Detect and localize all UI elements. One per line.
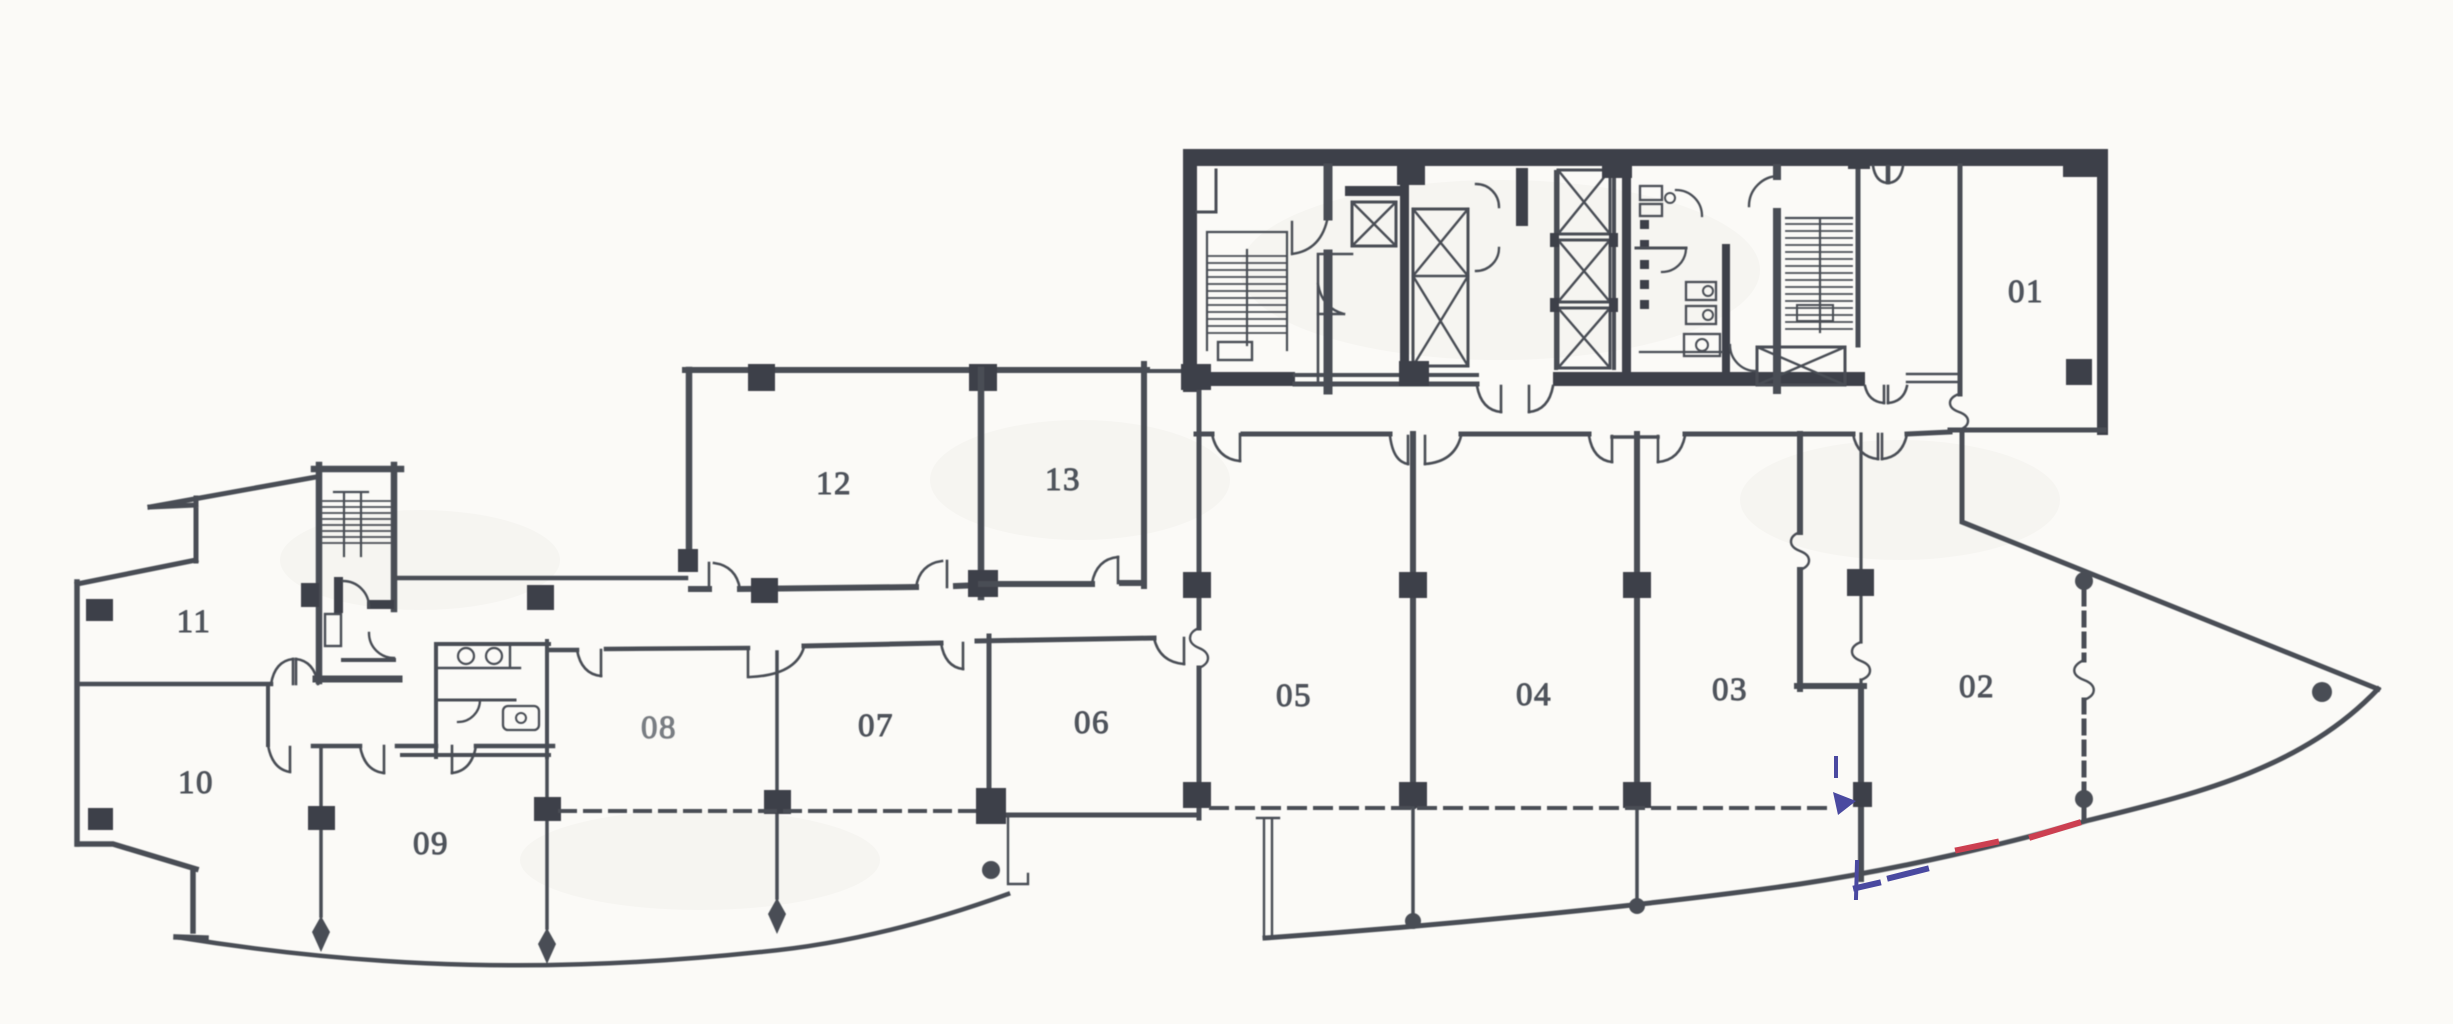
svg-text:10: 10 bbox=[178, 765, 214, 801]
svg-text:05: 05 bbox=[1276, 678, 1312, 714]
svg-text:03: 03 bbox=[1712, 672, 1748, 708]
svg-text:06: 06 bbox=[1074, 705, 1110, 741]
svg-text:09: 09 bbox=[413, 826, 449, 862]
svg-text:13: 13 bbox=[1045, 462, 1081, 498]
svg-text:01: 01 bbox=[2008, 274, 2044, 310]
svg-text:02: 02 bbox=[1959, 669, 1995, 705]
svg-text:08: 08 bbox=[641, 710, 677, 746]
svg-text:04: 04 bbox=[1516, 677, 1552, 713]
svg-text:07: 07 bbox=[858, 708, 894, 744]
svg-text:12: 12 bbox=[816, 466, 852, 502]
svg-text:11: 11 bbox=[177, 604, 212, 640]
